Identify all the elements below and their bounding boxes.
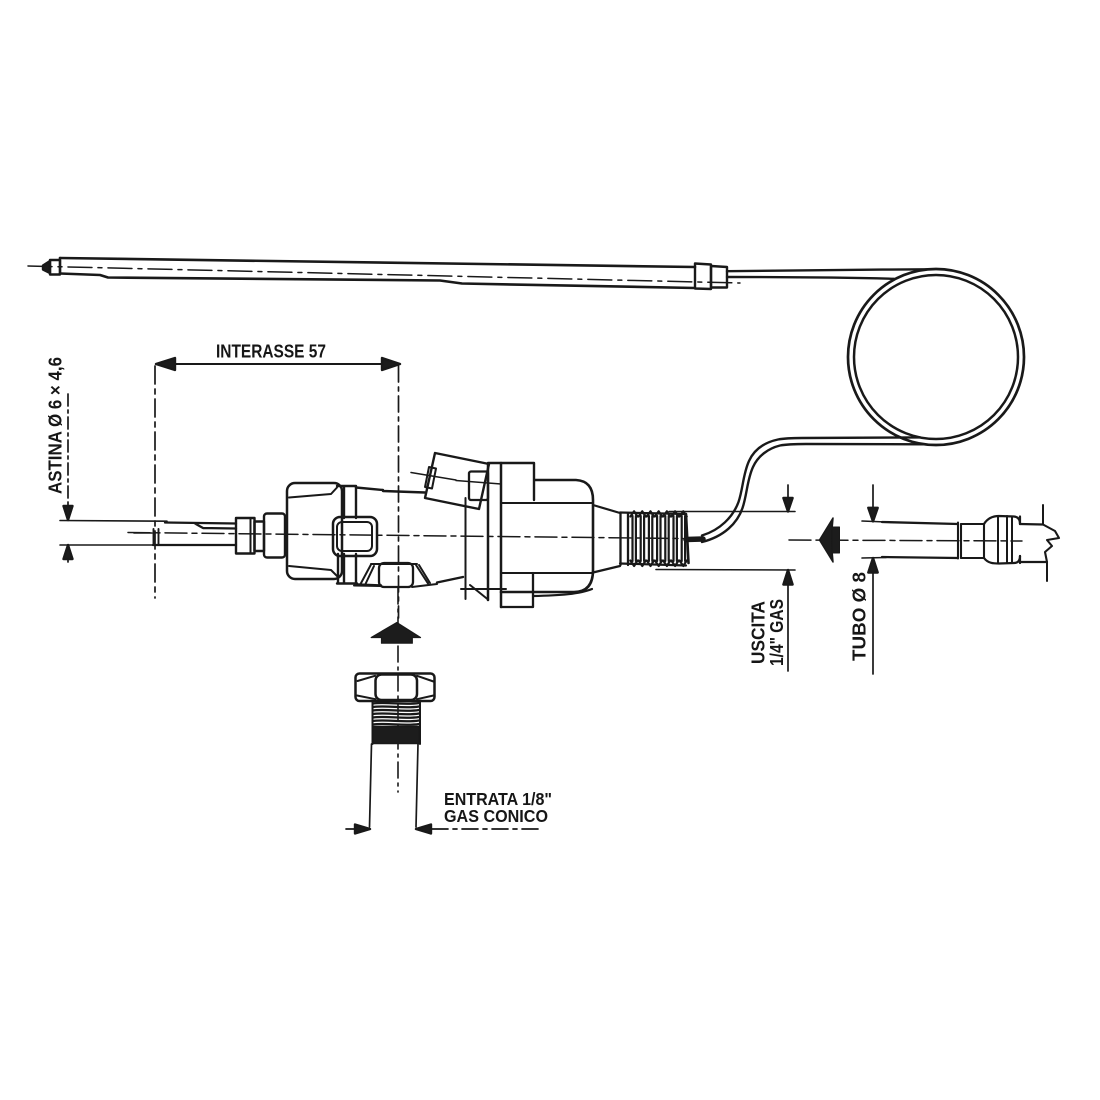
svg-text:ASTINA Ø 6 × 4,6: ASTINA Ø 6 × 4,6 xyxy=(45,357,66,494)
svg-text:TUBO Ø 8: TUBO Ø 8 xyxy=(849,572,870,661)
svg-text:GAS CONICO: GAS CONICO xyxy=(444,806,548,826)
svg-text:1/4" GAS: 1/4" GAS xyxy=(767,599,787,666)
svg-text:USCITA: USCITA xyxy=(749,601,769,664)
svg-text:INTERASSE 57: INTERASSE 57 xyxy=(216,342,326,362)
